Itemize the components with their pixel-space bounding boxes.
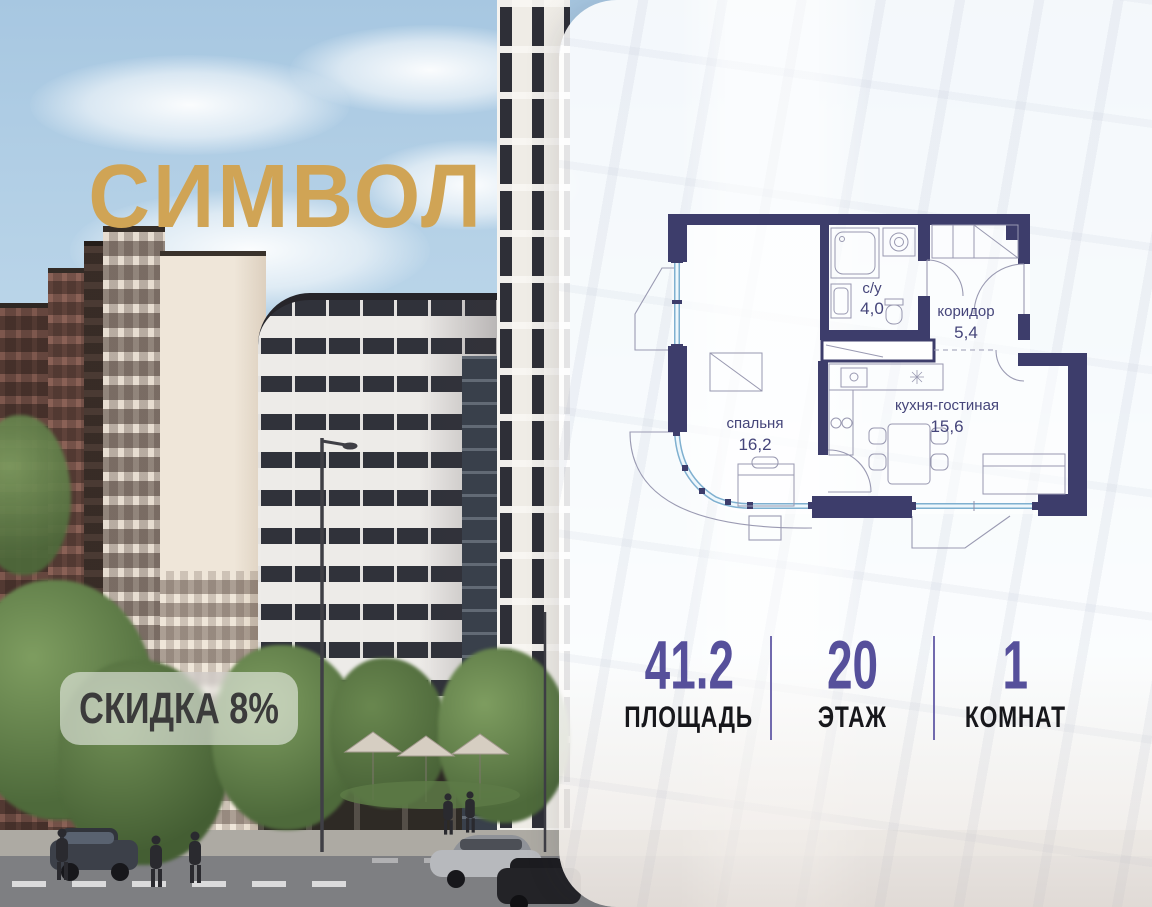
brand-logo: СИМВОЛ: [88, 150, 479, 245]
discount-badge-label: СКИДКА 8%: [79, 684, 279, 734]
room-label-kitchen: кухня-гостиная: [895, 397, 999, 414]
stat-divider: [933, 636, 935, 740]
stat-floor: 20 ЭТАЖ: [772, 628, 933, 756]
hedge: [340, 781, 520, 809]
room-label-bathroom: с/у: [862, 280, 882, 297]
room-area-corridor: 5,4: [954, 323, 978, 342]
stat-area-value: 41.2: [644, 628, 733, 705]
stat-floor-value: 20: [827, 628, 878, 705]
stat-area-label: ПЛОЩАДЬ: [625, 702, 754, 734]
stat-divider: [770, 636, 772, 740]
wardrobe: [822, 340, 934, 361]
room-area-kitchen: 15,6: [930, 417, 963, 436]
room-label-bedroom: спальня: [727, 415, 784, 432]
room-area-bathroom: 4,0: [860, 299, 884, 318]
promo-card[interactable]: СИМВОЛ СКИДКА 8%: [0, 0, 1152, 907]
stat-rooms: 1 КОМНАТ: [935, 628, 1096, 756]
stat-area: 41.2 ПЛОЩАДЬ: [608, 628, 770, 756]
stats-row: 41.2 ПЛОЩАДЬ 20 ЭТАЖ 1 КОМНАТ: [608, 628, 1096, 756]
discount-badge: СКИДКА 8%: [60, 672, 298, 745]
stat-floor-label: ЭТАЖ: [818, 702, 887, 734]
room-area-bedroom: 16,2: [738, 435, 771, 454]
floor-plan: с/у 4,0 коридор 5,4 спальня 16,2 кухня-г…: [625, 198, 1095, 583]
room-label-corridor: коридор: [937, 303, 994, 320]
stat-rooms-value: 1: [1003, 628, 1029, 705]
stat-rooms-label: КОМНАТ: [965, 702, 1066, 734]
